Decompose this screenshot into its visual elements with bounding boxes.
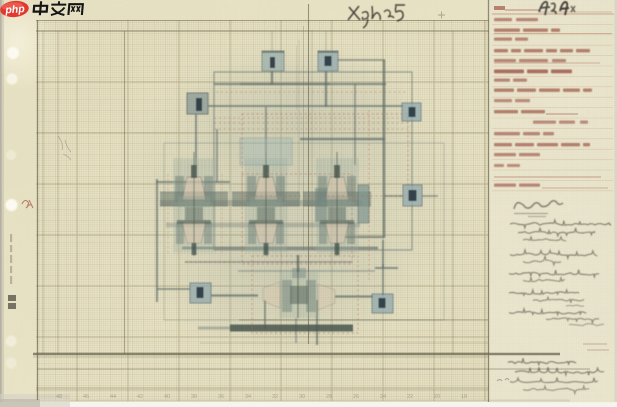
svg-text:46: 46 (83, 394, 89, 400)
svg-text:18: 18 (461, 394, 467, 400)
svg-text:30: 30 (299, 394, 305, 400)
svg-text:42: 42 (137, 394, 143, 400)
svg-text:48: 48 (56, 394, 62, 400)
svg-text:22: 22 (407, 394, 413, 400)
svg-text:26: 26 (353, 394, 359, 400)
svg-text:36: 36 (218, 394, 224, 400)
svg-text:32: 32 (272, 394, 278, 400)
svg-text:40: 40 (164, 394, 170, 400)
svg-text:38: 38 (191, 394, 197, 400)
svg-text:34: 34 (245, 394, 251, 400)
svg-text:24: 24 (380, 394, 386, 400)
svg-text:44: 44 (110, 394, 116, 400)
svg-text:20: 20 (434, 394, 440, 400)
svg-text:28: 28 (326, 394, 332, 400)
svg-text:php: php (4, 3, 26, 16)
